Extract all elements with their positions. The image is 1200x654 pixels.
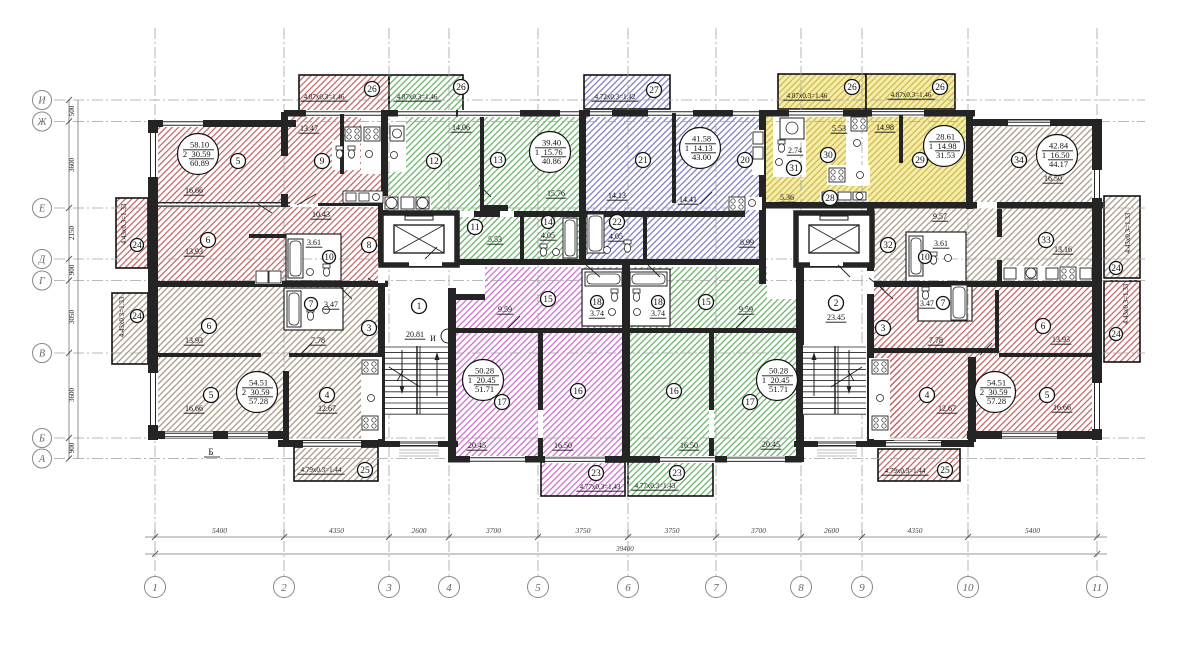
svg-text:2: 2 [183,149,187,159]
svg-text:8: 8 [367,241,372,251]
svg-text:8.99: 8.99 [740,238,754,247]
svg-text:5: 5 [209,391,214,401]
svg-text:7: 7 [309,300,314,310]
svg-text:5.53: 5.53 [832,124,846,133]
svg-text:28.61: 28.61 [936,132,955,142]
svg-text:3700: 3700 [485,526,501,535]
svg-text:4.43x0.3=1.33: 4.43x0.3=1.33 [1122,283,1130,324]
svg-text:4.87x0.3=1.46: 4.87x0.3=1.46 [397,93,438,101]
svg-text:500: 500 [68,105,76,116]
svg-text:4.43x0.3=1.33: 4.43x0.3=1.33 [1124,212,1132,253]
svg-text:6: 6 [1041,322,1046,332]
svg-text:2: 2 [980,387,984,397]
svg-text:23.45: 23.45 [827,313,845,322]
svg-text:33: 33 [1041,236,1051,246]
svg-text:39400: 39400 [615,545,634,553]
svg-text:23: 23 [672,469,682,479]
svg-text:39.40: 39.40 [542,138,561,148]
svg-text:24: 24 [132,312,142,322]
svg-text:54.51: 54.51 [249,378,268,388]
svg-text:5.36: 5.36 [780,193,794,202]
svg-text:4.43x0.3=1.33: 4.43x0.3=1.33 [120,203,128,244]
svg-text:4: 4 [925,391,930,401]
svg-text:6: 6 [206,236,211,246]
svg-text:4.87x0.3=1.46: 4.87x0.3=1.46 [304,93,345,101]
svg-text:26: 26 [456,83,466,93]
svg-text:4.43x0.3=1.33: 4.43x0.3=1.33 [118,296,126,337]
svg-text:Д: Д [38,255,46,266]
svg-text:3.74: 3.74 [590,309,604,318]
svg-text:2150: 2150 [68,226,76,241]
svg-text:2: 2 [242,387,246,397]
svg-text:10: 10 [963,582,975,594]
svg-text:12.67: 12.67 [938,404,956,413]
svg-text:4.77x0.3=1.43: 4.77x0.3=1.43 [635,482,676,490]
svg-text:21: 21 [638,156,648,166]
svg-text:1: 1 [929,141,933,151]
svg-text:13: 13 [493,156,503,166]
svg-text:3600: 3600 [68,158,76,173]
svg-text:2600: 2600 [824,526,839,535]
svg-text:10: 10 [920,253,930,263]
svg-text:16.66: 16.66 [185,186,203,195]
svg-text:2.74: 2.74 [788,146,802,155]
svg-text:4.87x0.3=1.46: 4.87x0.3=1.46 [787,92,828,100]
svg-text:31: 31 [789,164,799,174]
svg-text:1: 1 [152,582,158,594]
svg-text:1: 1 [685,143,689,153]
svg-text:2: 2 [834,299,839,309]
svg-text:22: 22 [612,218,622,228]
svg-text:26: 26 [935,83,945,93]
svg-text:13.93: 13.93 [185,336,203,345]
svg-text:9: 9 [320,157,325,167]
svg-text:5400: 5400 [212,526,227,535]
svg-text:16.50: 16.50 [680,441,698,450]
svg-text:27: 27 [649,86,659,96]
svg-text:17: 17 [745,398,755,408]
svg-text:И: И [430,334,436,343]
svg-text:900: 900 [68,264,76,275]
svg-text:29: 29 [915,156,925,166]
svg-text:9.57: 9.57 [933,212,947,221]
svg-text:4.05: 4.05 [609,232,623,241]
svg-text:3050: 3050 [68,310,76,325]
svg-text:16: 16 [669,387,679,397]
svg-text:12: 12 [429,157,439,167]
svg-text:2600: 2600 [412,526,427,535]
svg-text:23: 23 [591,469,601,479]
svg-text:13.93: 13.93 [185,247,203,256]
svg-text:5400: 5400 [1025,526,1040,535]
svg-text:4350: 4350 [329,526,344,535]
svg-text:3.61: 3.61 [934,239,948,248]
svg-text:4.87x0.3=1.46: 4.87x0.3=1.46 [891,91,932,99]
svg-text:26: 26 [847,83,857,93]
svg-text:15: 15 [543,295,553,305]
svg-text:16.50: 16.50 [1044,174,1062,183]
svg-text:18: 18 [653,298,663,308]
svg-text:20.45: 20.45 [762,440,780,449]
svg-text:14: 14 [543,218,553,228]
svg-text:9.59: 9.59 [498,305,512,314]
svg-text:1: 1 [762,375,766,385]
svg-text:18: 18 [592,298,602,308]
svg-text:1: 1 [417,302,422,312]
svg-text:2: 2 [281,582,287,594]
svg-text:17: 17 [497,398,507,408]
svg-text:25: 25 [940,466,950,476]
svg-text:9.59: 9.59 [739,305,753,314]
svg-text:3: 3 [881,324,886,334]
svg-text:6: 6 [625,582,631,594]
svg-text:24: 24 [132,241,142,251]
svg-text:50.28: 50.28 [769,366,788,376]
svg-text:3.74: 3.74 [651,309,665,318]
svg-text:Г: Г [38,276,45,287]
svg-text:5: 5 [1045,391,1050,401]
svg-text:25: 25 [360,466,370,476]
svg-text:32: 32 [883,241,893,251]
svg-text:42.84: 42.84 [1049,141,1069,151]
svg-text:4.72x0.3=1.42: 4.72x0.3=1.42 [595,93,636,101]
svg-text:24: 24 [1111,330,1121,340]
svg-text:11: 11 [470,223,479,233]
svg-text:7: 7 [713,582,719,594]
svg-text:44.17: 44.17 [1049,159,1068,169]
svg-text:10.43: 10.43 [312,210,330,219]
svg-text:57.28: 57.28 [249,396,268,406]
svg-text:7.78: 7.78 [929,336,943,345]
svg-text:3.61: 3.61 [307,238,321,247]
svg-text:1: 1 [1042,150,1046,160]
svg-text:Б: Б [208,447,213,457]
svg-text:4.05: 4.05 [541,231,555,240]
svg-text:14.06: 14.06 [452,123,470,132]
svg-text:16: 16 [573,387,583,397]
svg-text:51.71: 51.71 [769,384,788,394]
svg-text:6: 6 [207,322,212,332]
svg-text:34: 34 [1014,156,1024,166]
svg-text:43.00: 43.00 [692,152,711,162]
svg-text:7.78: 7.78 [311,336,325,345]
svg-text:16.50: 16.50 [554,441,572,450]
svg-text:4: 4 [325,391,330,401]
svg-text:20: 20 [740,156,750,166]
svg-text:51.71: 51.71 [475,384,494,394]
svg-text:5: 5 [236,157,241,167]
svg-text:50.28: 50.28 [475,366,494,376]
svg-text:Е: Е [38,204,45,215]
svg-text:14.98: 14.98 [876,123,894,132]
svg-text:13.16: 13.16 [1054,245,1072,254]
svg-text:41.58: 41.58 [692,134,711,144]
svg-text:13.93: 13.93 [1052,335,1070,344]
svg-text:3: 3 [385,582,392,594]
svg-text:4350: 4350 [908,526,923,535]
svg-text:11: 11 [1092,582,1102,594]
svg-text:3.47: 3.47 [920,299,934,308]
svg-text:В: В [39,349,45,360]
svg-text:13.47: 13.47 [300,124,318,133]
svg-text:7: 7 [941,299,946,309]
svg-text:3: 3 [367,324,372,334]
svg-text:16.66: 16.66 [185,404,203,413]
svg-text:Б: Б [38,434,45,445]
svg-text:15.76: 15.76 [547,189,565,198]
svg-text:1: 1 [468,375,472,385]
svg-text:Ж: Ж [36,117,47,128]
svg-text:20.81: 20.81 [406,330,424,339]
svg-text:3600: 3600 [68,388,76,403]
svg-text:16.66: 16.66 [1053,403,1071,412]
svg-text:3700: 3700 [750,526,766,535]
svg-text:10: 10 [324,253,334,263]
svg-text:4.79x0.3=1.44: 4.79x0.3=1.44 [301,466,342,474]
svg-text:12.67: 12.67 [318,404,336,413]
svg-text:3.47: 3.47 [324,300,338,309]
svg-text:30: 30 [823,151,833,161]
svg-text:5.53: 5.53 [488,235,502,244]
svg-text:40.86: 40.86 [542,156,561,166]
svg-text:4.77x0.3=1.43: 4.77x0.3=1.43 [580,483,621,491]
svg-text:А: А [38,454,46,465]
svg-text:31.53: 31.53 [936,150,955,160]
svg-text:20.45: 20.45 [468,441,486,450]
svg-text:9: 9 [859,582,865,594]
svg-text:24: 24 [1111,264,1121,274]
svg-text:900: 900 [68,442,76,453]
svg-text:5: 5 [535,582,541,594]
svg-text:И: И [37,96,46,107]
svg-text:4.79x0.3=1.44: 4.79x0.3=1.44 [885,467,926,475]
svg-text:4: 4 [446,582,452,594]
svg-text:60.89: 60.89 [190,158,209,168]
svg-text:54.51: 54.51 [987,378,1006,388]
svg-text:58.10: 58.10 [190,140,209,150]
svg-text:28: 28 [825,194,835,204]
svg-text:57.28: 57.28 [987,396,1006,406]
svg-text:14.41: 14.41 [679,195,697,204]
svg-text:26: 26 [367,85,377,95]
svg-text:3750: 3750 [575,526,591,535]
svg-text:3750: 3750 [664,526,680,535]
svg-text:1: 1 [535,147,539,157]
svg-text:15: 15 [701,298,711,308]
svg-text:8: 8 [798,582,804,594]
svg-text:14.13: 14.13 [608,191,626,200]
